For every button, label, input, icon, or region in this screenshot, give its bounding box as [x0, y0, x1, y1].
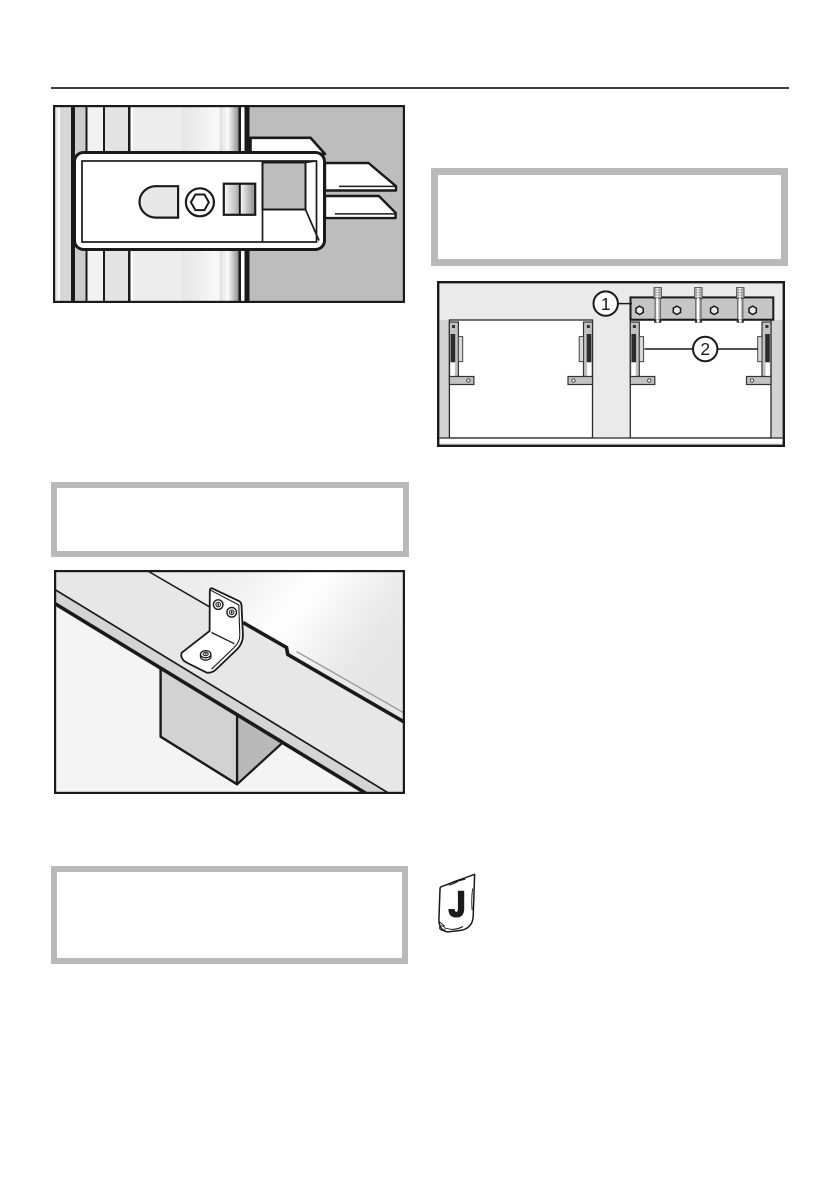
svg-text:1: 1 [601, 294, 611, 314]
svg-text:2: 2 [700, 339, 710, 359]
